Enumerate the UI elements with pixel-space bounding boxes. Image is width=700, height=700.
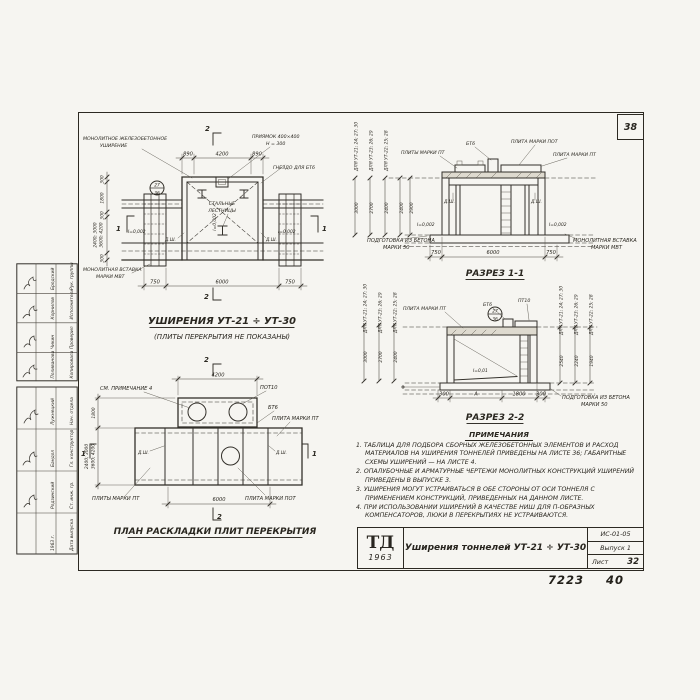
section-mark-1: 1 [116,225,121,233]
stamp-upper-table: Бродский Рук. группы Корнилов Исполнител… [17,262,77,381]
label-pt10: ПТ10 [518,298,530,304]
dim-label: А [473,392,478,398]
label-prep: Подготовка из бетона [367,238,435,244]
title-block-right: ИС-01-05 Выпуск 1 Лист 32 [587,528,643,568]
dim-label: 2400; 3000 [84,444,90,469]
dim-variant-label: Для УТ-22; 25; 28 [384,130,390,172]
label-slope: i=0,002 [417,222,435,228]
detail-number: 27 [154,183,160,189]
label-plate-pt: Плита марки ПТ [272,416,320,422]
s2-title-group: Разрез 2-2 [466,413,525,424]
label-socket: Гнездо для БТ6 [273,165,315,171]
label-slope: i=0,01 [473,368,488,374]
s1-structure [389,159,597,247]
stamp-role: Дата выпуска [69,519,75,552]
dim-variant-value: 2240 [574,355,580,366]
note-item: 4. При использовании уширений в качестве… [356,504,642,521]
dim-variant-value: 2400 [393,351,399,362]
label-plate-pot: Плита марки ПОТ [511,139,559,145]
label-plate-pt: Плита марки ПТ [553,152,597,158]
label-joint: Д.ш. [275,450,287,456]
dim-label: 6000 [487,250,500,256]
dim-label: 6000 [213,497,226,503]
ladder [501,185,511,235]
label-widening: Монолитное железобетонное [83,136,167,142]
signature-scribble [24,336,36,347]
steel-ladder-symbol [218,226,227,235]
label-insert: марки МВТ [96,274,126,280]
signature-scribble [23,452,37,465]
label-pot10: ПОТ10 [260,385,277,391]
dim-label: 2400; 3000 [93,222,99,247]
sheet-row: Лист 32 [588,555,643,568]
steel-ladder-symbol [198,190,206,198]
dim-variant-label: Для УТ-23; 26; 29 [574,294,580,336]
label-plates-pt: Плиты марки ПТ [401,150,446,156]
dim-label: 750 [285,280,295,286]
stamp-role: Проверил [69,326,75,349]
pp-dims: 4200 1800 2400; 3000 3600; 4200 6000 [84,373,276,509]
stamp-role: Нач. отдела [69,397,75,425]
dim-label: 890 [183,152,193,158]
label-bt6: БТ6 [268,405,279,411]
plan-title-group: Уширения УТ-21 ÷ УТ-30 (Плиты перекрытия… [148,316,296,341]
dim-variant-label: Для УТ-21; 24; 27; 30 [363,284,369,334]
dim-variant-value: 3000 [354,202,360,213]
doc-number-2: 40 [606,573,624,587]
signature-scribble [24,277,36,289]
label-ladders: Стальные [209,201,235,207]
dim-label: 4200 [216,152,229,158]
dim-label: 4200 [212,373,225,379]
label-slope: i=0,002 [549,222,567,228]
s1-variant-dims: Для УТ-21; 24; 27; 30 3000 Для УТ-23; 26… [353,122,415,237]
notes-title-wrap: Примечания [356,430,642,439]
label-joint: Д.ш. [164,237,176,243]
s1-bottom-dim: 750 6000 750 [425,237,563,261]
logo-year: 1963 [368,553,392,562]
scanned-blueprint-sheet: { "sheet": { "corner_number": "38", "sta… [0,0,700,700]
label-pit: h = 300 [266,141,285,147]
dim-label: 3600; 4200 [99,222,105,247]
section-mark-2: 2 [204,356,209,364]
label-prep: марки 50 [581,402,607,408]
label-joint: Д.ш. [530,199,542,205]
pp-title-group: План раскладки плит перекрытия [114,527,317,538]
dim-variant-label: Для УТ-21; 24; 27; 30 [559,286,565,336]
dim-label: 300 [100,211,106,220]
plan-structure [122,177,323,266]
dim-variant-label: Для УТ-23; 26; 29 [378,292,384,334]
section-1-1-drawing: Для УТ-21; 24; 27; 30 3000 Для УТ-23; 26… [345,115,645,290]
dim-label: 1800 [100,192,106,203]
dim-label: 750 [150,280,160,286]
s2-bottom-dim: 300 А 1800 300 [433,383,550,402]
stamp-role: Рук. группы [69,262,75,290]
dim-label: 300 [100,254,106,263]
label-widening: уширение [100,143,127,149]
dim-label: 6000 [216,280,229,286]
section-mark-2: 2 [217,513,222,521]
plan-drawing: 890 4200 890 300 1800 300 2400; 3000 360… [80,118,355,348]
bt6-block [503,319,513,327]
label-see-note: См. примечание 4 [100,386,152,392]
note-item: 2. Опалубочные и арматурные чертежи моно… [356,468,642,485]
detail-number: 27 [492,309,498,315]
dim-variant-label: Для УТ-22; 25; 28 [393,292,399,334]
stamp-name: Лужнецкий [50,398,56,426]
logo-td: ТД [367,535,395,552]
signature-scribble [24,495,37,507]
section2-title: Разрез 2-2 [466,413,525,423]
s1-annotations: Плиты марки ПТ БТ6 Плита марки ПОТ Плита… [367,139,637,251]
sheet-number: 32 [627,557,639,567]
signature-scribble [23,306,37,318]
label-pit: Приямок 400×400 [252,134,300,140]
monolithic-insert-left [144,194,166,266]
stamp-role: Ст. инж. гр. [69,482,75,509]
sheet-label: Лист [592,558,608,566]
section-mark-1: 1 [322,225,327,233]
label-insert: Монолитная вставка [83,267,142,273]
s2-left-dims: Для УТ-21; 24; 27; 30 3000 Для УТ-23; 26… [362,284,399,383]
stamp-role: Исполнитель [69,289,75,320]
section-mark-1: 1 [312,450,317,458]
section-2-2-drawing: Для УТ-21; 24; 27; 30 3000 Для УТ-23; 26… [345,277,645,429]
stamp-name: Родзинский [50,482,56,509]
dim-variant-value: 2700 [369,202,375,213]
stamp-role: Гл. конструктор [69,429,75,467]
steel-ladder-symbol [240,190,248,198]
label-plates-pt: Плиты марки ПТ [92,496,140,502]
title-block: ТД 1963 Уширения тоннелей УТ-21 ÷ УТ-30 … [357,527,644,569]
dim-variant-label: Для УТ-22; 25; 28 [589,294,595,336]
detail-sheet: 36 [492,317,498,323]
doc-code: ИС-01-05 [588,528,643,542]
doc-number: 7223 [548,573,584,587]
hatch-opening [222,447,240,465]
note-item: 3. Уширения могут устраиваться в обе сто… [356,486,642,503]
stamp-name: Бандол [50,450,56,467]
plan-subtitle: (Плиты перекрытия не показаны) [154,333,290,341]
pp-structure [135,398,302,485]
detail-callout-circle: 27 36 [488,307,502,323]
label-prep: марки 50 [383,245,409,251]
stamp-name: 1963 г. [50,535,56,551]
label-slope: i=0,002 [278,229,296,235]
label-plate-pt: Плита марки ПТ [403,306,447,312]
label-bt6: БТ6 [466,141,475,147]
dim-label: 750 [431,250,441,256]
bt6-block [488,159,498,172]
label-slope: i=0,002 [212,213,218,231]
drawing-title: Уширения тоннелей УТ-21 ÷ УТ-30 [404,528,587,568]
margin-stamp-table: Бродский Рук. группы Корнилов Исполнител… [16,263,78,555]
stamp-role: Копировала [69,350,75,378]
hatch-opening [188,403,206,421]
dim-variant-value: 2700 [378,351,384,362]
ladder [520,335,528,383]
dim-label: 1800 [91,407,97,418]
s2-right-dims: Для УТ-21; 24; 27; 30 2540 Для УТ-23; 26… [558,286,595,385]
dim-variant-value: 3000 [363,351,369,362]
note-item: 1. Таблица для подбора сборных железобет… [356,442,642,467]
dim-variant-value: 1940 [589,355,595,366]
section-mark-2: 2 [204,293,209,301]
hatch-opening [229,403,247,421]
stamp-lower-table: Лужнецкий Нач. отдела Бандол Гл. констру… [17,387,77,554]
detail-sheet: 36 [154,191,160,197]
dim-inner: 2900 [409,202,415,213]
dim-label: 3600; 4200 [91,444,97,469]
s2-structure [402,319,597,394]
label-insert: Монолитная вставка [573,238,637,244]
dim-label: 300 [439,392,449,398]
dim-label: 1800 [513,392,526,398]
notes-title: Примечания [465,430,533,441]
dim-variant-label: Для УТ-23; 26; 29 [369,130,375,172]
stamp-name: Корнилов [50,297,56,320]
dim-inner: 2400 [399,202,405,213]
dim-label: 300 [536,392,546,398]
signature-scribble [23,365,37,377]
section-mark-2: 2 [205,125,210,133]
label-plate-pot: Плита марки ПОТ [245,496,297,502]
stamp-name: Чикин [50,335,56,349]
doc-issue: Выпуск 1 [588,542,643,556]
label-ladders: лестницы [207,208,236,214]
plates-plan-title: План раскладки плит перекрытия [114,527,317,537]
label-joint: Д.ш. [265,237,277,243]
notes-block: Примечания 1. Таблица для подбора сборны… [356,430,642,522]
label-insert: марки МВТ [591,245,623,251]
title-block-logo: ТД 1963 [358,528,404,568]
label-bt6: БТ6 [483,302,492,308]
dim-variant-value: 2540 [559,355,565,366]
stamp-name: Бродский [50,268,56,290]
label-slope: i=0,002 [128,229,146,235]
dim-variant-label: Для УТ-21; 24; 27; 30 [354,122,360,172]
plates-layout-drawing: 2 2 1 1 4200 1800 2400; 3000 3600; 4200 … [80,352,350,542]
dim-variant-value: 2400 [384,202,390,213]
label-prep: Подготовка из бетона [562,395,630,401]
plan-annotations: Монолитное железобетонное уширение Приям… [83,134,315,280]
doc-numbers: 722340 [548,573,646,587]
dim-label: 750 [546,250,556,256]
dim-label: 300 [100,175,106,184]
stamp-name: Поливанова [50,350,56,378]
label-joint: Д.ш. [137,450,149,456]
plan-title: Уширения УТ-21 ÷ УТ-30 [148,316,296,327]
